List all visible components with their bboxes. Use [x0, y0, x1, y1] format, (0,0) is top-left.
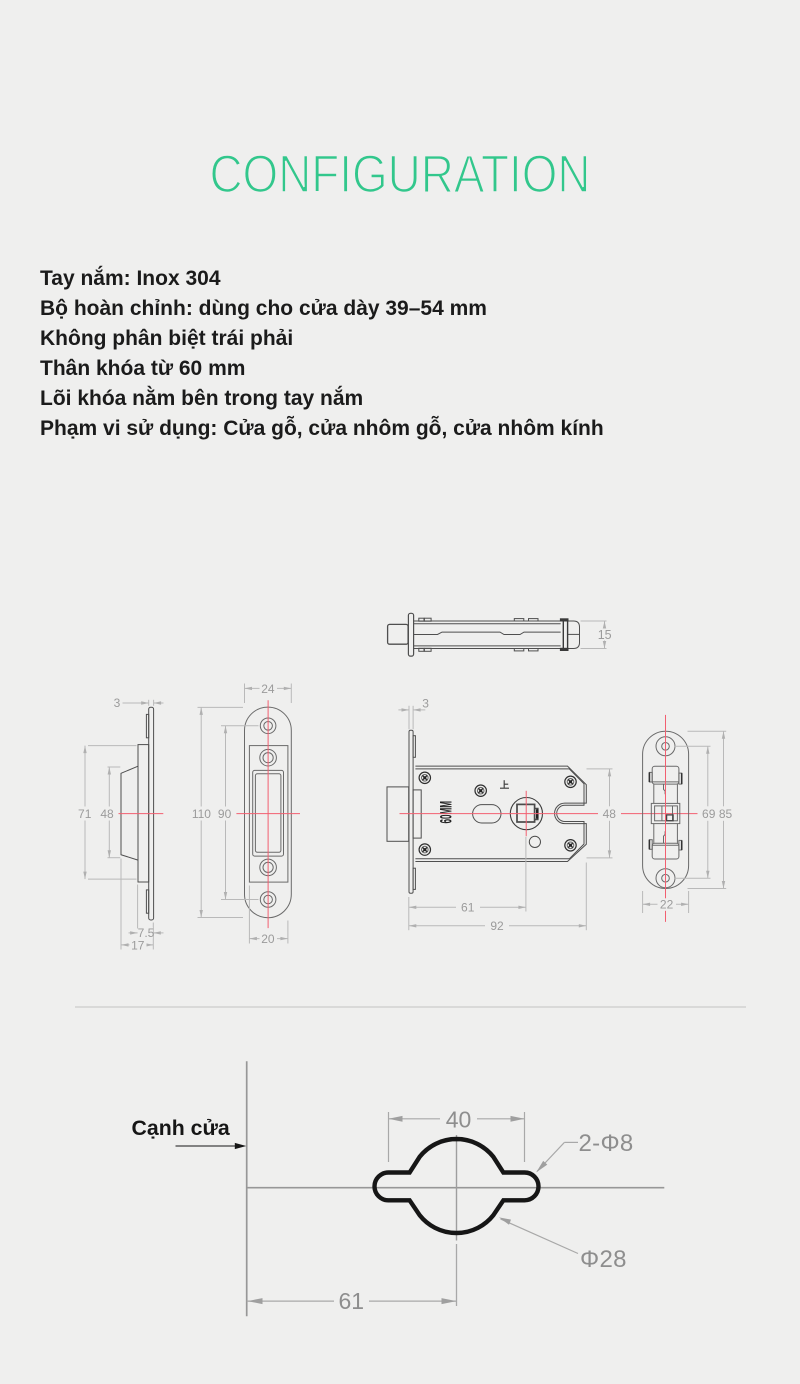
svg-text:Φ28: Φ28	[580, 1246, 627, 1273]
svg-text:15: 15	[598, 628, 612, 642]
svg-text:90: 90	[218, 807, 232, 821]
svg-text:48: 48	[100, 807, 114, 821]
svg-text:24: 24	[261, 682, 275, 696]
svg-text:40: 40	[446, 1107, 472, 1133]
svg-text:60MM: 60MM	[436, 801, 455, 824]
svg-text:2-Φ8: 2-Φ8	[579, 1130, 634, 1157]
svg-text:20: 20	[261, 932, 275, 946]
svg-text:110: 110	[192, 807, 211, 821]
svg-text:85: 85	[719, 807, 733, 821]
svg-text:71: 71	[78, 807, 92, 821]
svg-text:61: 61	[339, 1288, 365, 1314]
svg-text:3: 3	[114, 696, 121, 710]
svg-text:69: 69	[702, 807, 716, 821]
svg-text:22: 22	[660, 898, 674, 912]
svg-text:3: 3	[422, 696, 429, 710]
svg-text:48: 48	[603, 807, 617, 821]
svg-text:61: 61	[461, 901, 475, 915]
svg-text:92: 92	[490, 919, 504, 933]
svg-text:17: 17	[131, 938, 145, 952]
